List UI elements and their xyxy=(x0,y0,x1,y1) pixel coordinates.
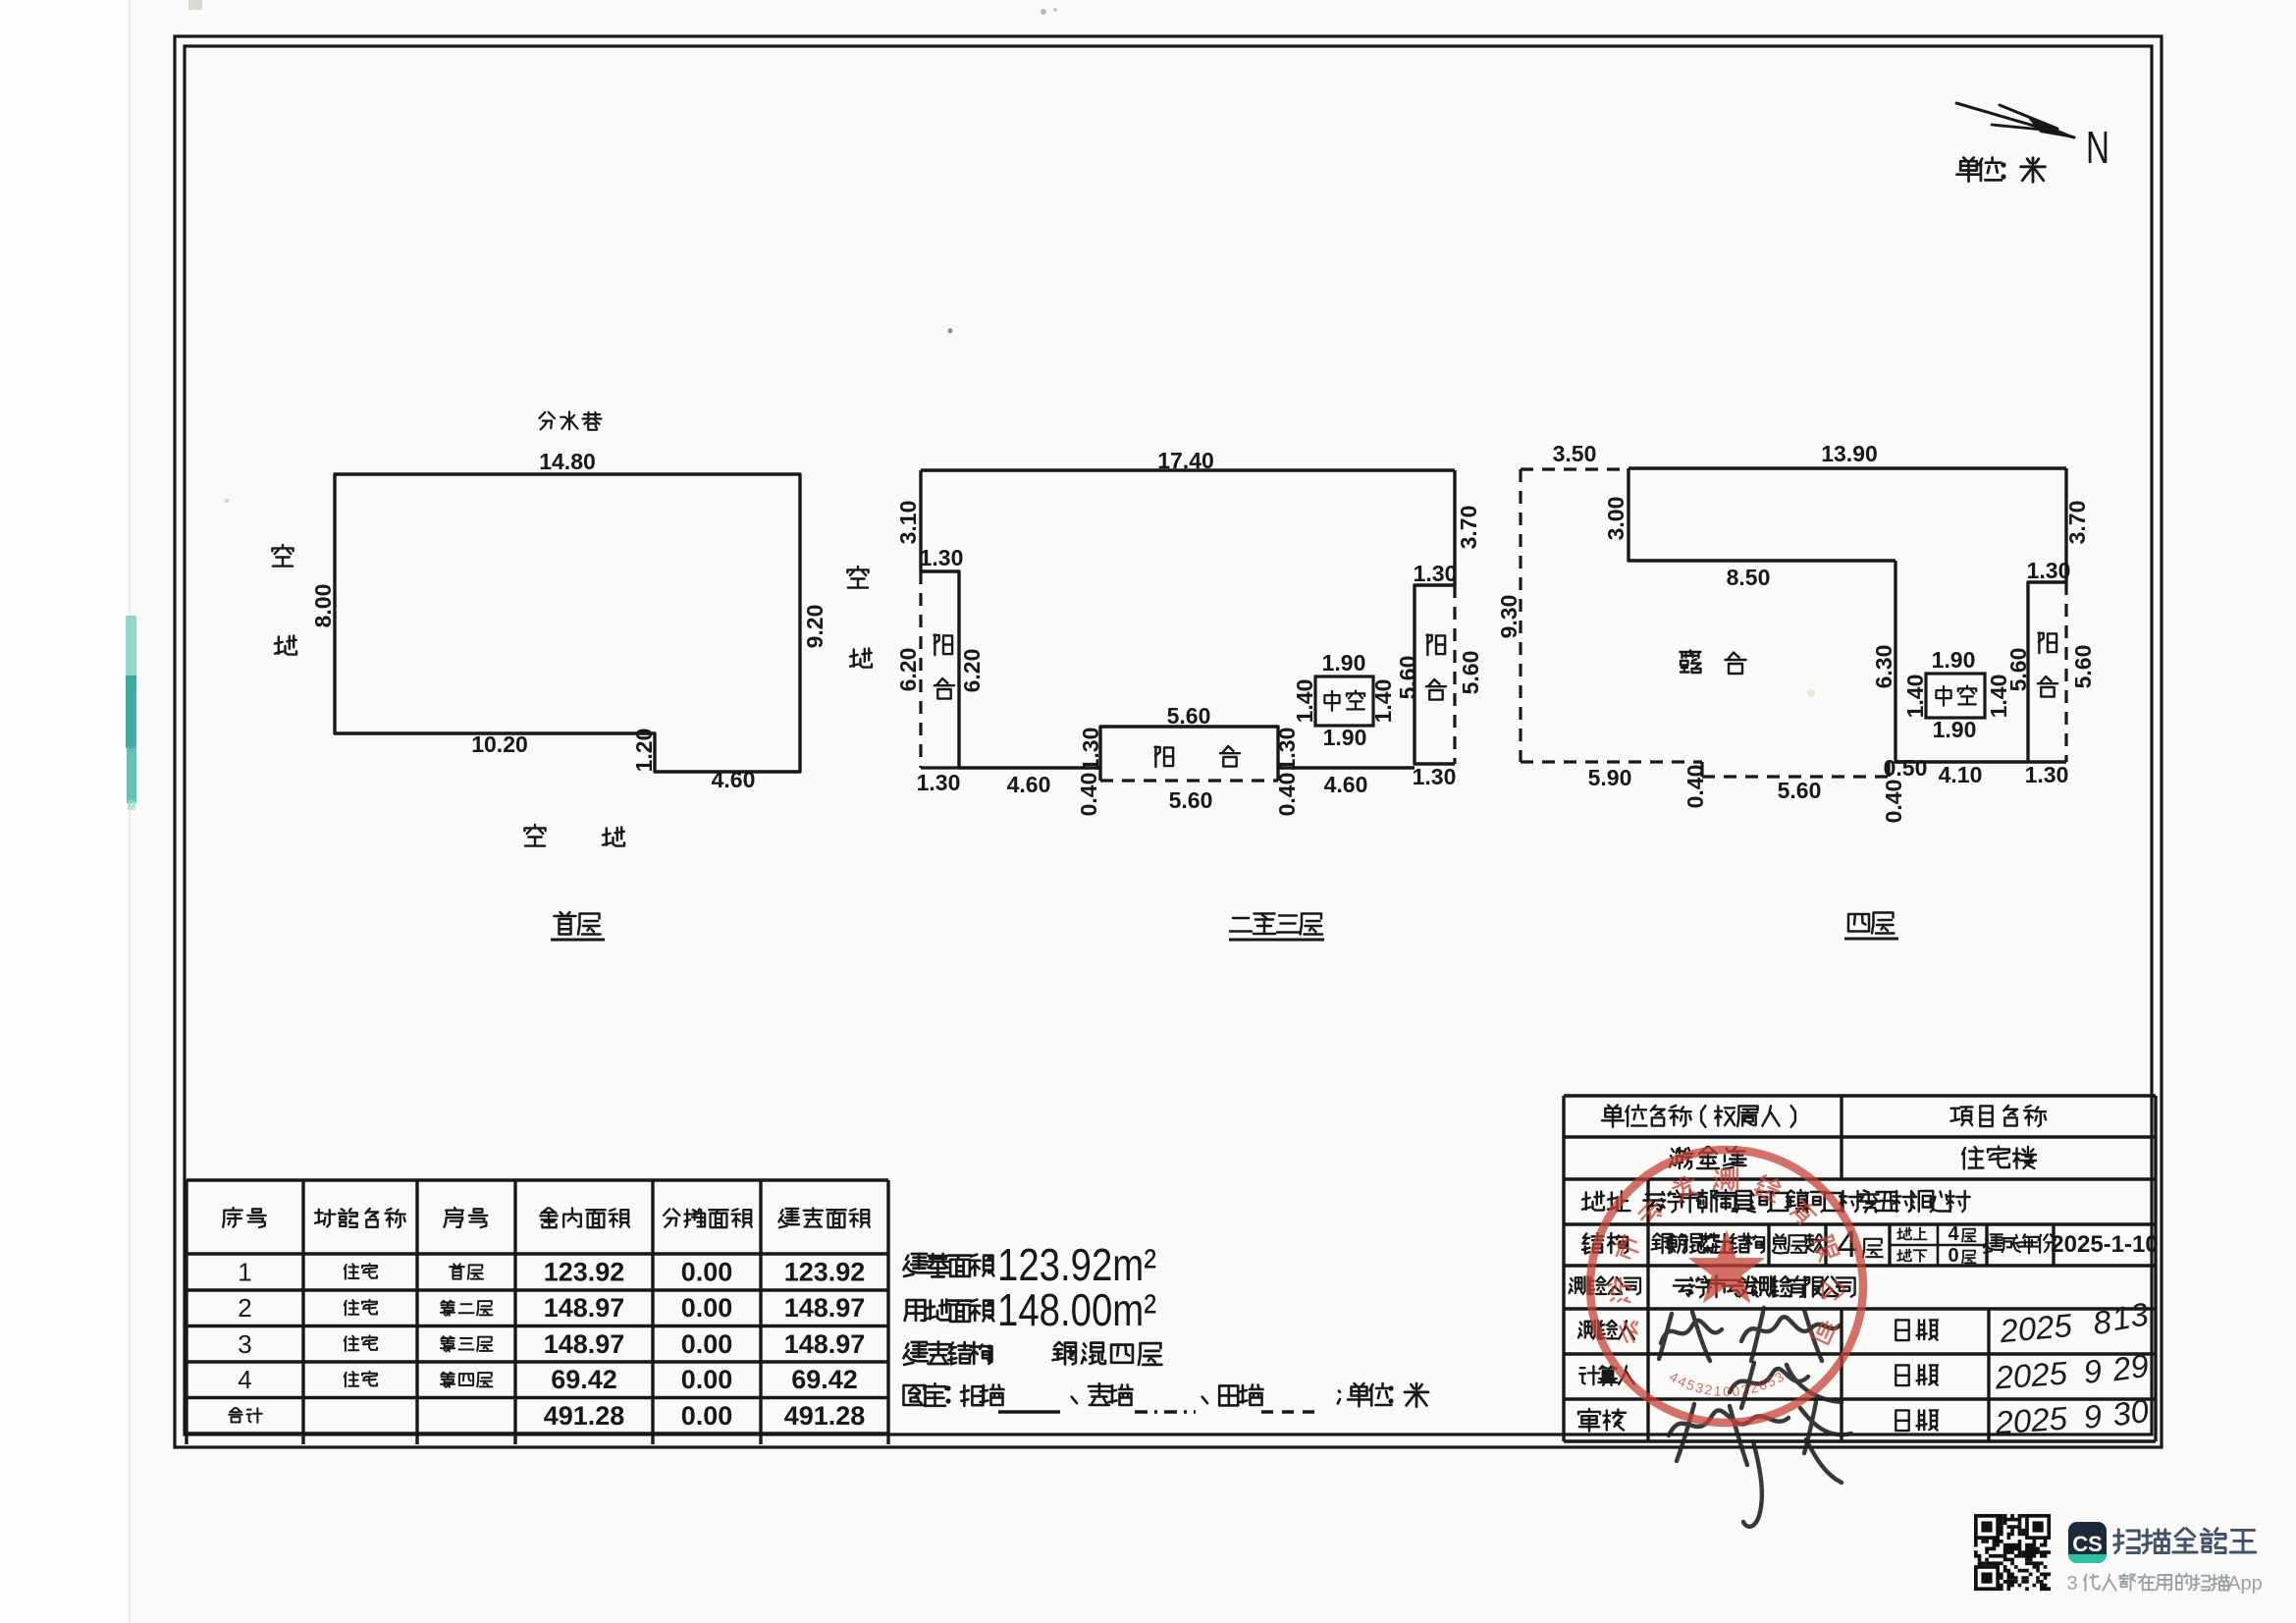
svg-text:4: 4 xyxy=(1948,1223,1959,1245)
svg-text:30: 30 xyxy=(2110,1392,2152,1434)
svg-text:1.90: 1.90 xyxy=(1323,725,1367,750)
svg-text:1.30: 1.30 xyxy=(2027,558,2071,583)
svg-text:N: N xyxy=(2086,122,2109,173)
svg-text:1.90: 1.90 xyxy=(1932,647,1976,673)
svg-text:148.00m²: 148.00m² xyxy=(997,1284,1156,1335)
svg-text:3.10: 3.10 xyxy=(895,501,921,545)
svg-text:5.60: 5.60 xyxy=(2005,648,2031,692)
svg-text:123.92: 123.92 xyxy=(544,1258,625,1287)
svg-text:5.90: 5.90 xyxy=(1588,765,1632,790)
svg-text:1.30: 1.30 xyxy=(2025,762,2069,787)
svg-text:4.60: 4.60 xyxy=(712,767,756,792)
svg-text:123.92: 123.92 xyxy=(784,1258,866,1287)
svg-text:4.60: 4.60 xyxy=(1007,772,1051,797)
svg-text:0: 0 xyxy=(1723,1383,1731,1399)
svg-text:29: 29 xyxy=(2109,1347,2152,1388)
svg-text:1: 1 xyxy=(1713,1382,1722,1399)
svg-text:491.28: 491.28 xyxy=(784,1401,866,1431)
svg-text:3.70: 3.70 xyxy=(1456,506,1481,550)
svg-text:14.80: 14.80 xyxy=(539,449,596,474)
svg-text:0: 0 xyxy=(1732,1382,1740,1399)
svg-text:3.50: 3.50 xyxy=(1553,441,1597,466)
svg-text:9: 9 xyxy=(2082,1352,2104,1390)
svg-text:2025: 2025 xyxy=(1993,1399,2068,1440)
svg-text:10.20: 10.20 xyxy=(471,731,528,757)
svg-text:2: 2 xyxy=(238,1293,251,1323)
svg-text:5.60: 5.60 xyxy=(1167,703,1211,729)
svg-text:8.00: 8.00 xyxy=(310,584,336,628)
svg-text:0.40: 0.40 xyxy=(1881,780,1906,824)
svg-text:1.40: 1.40 xyxy=(1902,675,1928,719)
svg-text:4.60: 4.60 xyxy=(1324,772,1368,797)
svg-text:0.00: 0.00 xyxy=(681,1258,733,1287)
svg-text:3.00: 3.00 xyxy=(1603,497,1629,541)
svg-text:0.40: 0.40 xyxy=(1076,773,1101,817)
svg-text:69.42: 69.42 xyxy=(791,1365,858,1394)
svg-text:148.97: 148.97 xyxy=(544,1293,625,1323)
svg-text:0.00: 0.00 xyxy=(681,1293,733,1323)
svg-text:9.20: 9.20 xyxy=(802,605,828,649)
svg-text:5.60: 5.60 xyxy=(1778,778,1822,803)
svg-text:1.30: 1.30 xyxy=(1413,764,1457,789)
svg-text:123.92m²: 123.92m² xyxy=(997,1239,1156,1290)
svg-text:2025: 2025 xyxy=(1998,1307,2074,1349)
svg-text:0.00: 0.00 xyxy=(681,1365,733,1394)
svg-text:1.30: 1.30 xyxy=(1274,728,1300,772)
svg-text:1.40: 1.40 xyxy=(1370,679,1396,724)
svg-text:4.10: 4.10 xyxy=(1939,762,1983,787)
svg-text:491.28: 491.28 xyxy=(544,1401,625,1431)
svg-text:0: 0 xyxy=(1948,1245,1958,1267)
svg-text:69.42: 69.42 xyxy=(551,1365,617,1394)
svg-text:5.60: 5.60 xyxy=(2070,645,2096,689)
svg-text:3: 3 xyxy=(238,1329,251,1359)
svg-text:6.20: 6.20 xyxy=(895,648,921,692)
svg-text:1.30: 1.30 xyxy=(1414,561,1458,586)
svg-text:148.97: 148.97 xyxy=(544,1329,625,1359)
svg-text:17.40: 17.40 xyxy=(1157,448,1214,473)
svg-text:0.00: 0.00 xyxy=(681,1401,733,1431)
svg-text:2025-1-10: 2025-1-10 xyxy=(2051,1231,2158,1258)
svg-text:1: 1 xyxy=(238,1258,251,1287)
svg-text:13: 13 xyxy=(2109,1295,2152,1337)
svg-text:0.40: 0.40 xyxy=(1682,765,1708,809)
svg-text:6.30: 6.30 xyxy=(1871,645,1896,689)
svg-text:0.50: 0.50 xyxy=(1884,755,1928,781)
svg-text:5.60: 5.60 xyxy=(1458,651,1483,695)
svg-text:0.00: 0.00 xyxy=(681,1329,733,1359)
svg-text:1.20: 1.20 xyxy=(631,729,657,773)
svg-text:5.60: 5.60 xyxy=(1395,656,1420,700)
svg-text:1.30: 1.30 xyxy=(917,770,961,795)
svg-text:148.97: 148.97 xyxy=(784,1329,866,1359)
svg-text:5.60: 5.60 xyxy=(1169,787,1213,813)
svg-text:4: 4 xyxy=(238,1365,251,1394)
svg-text:148.97: 148.97 xyxy=(784,1293,866,1323)
svg-text:0.40: 0.40 xyxy=(1274,773,1300,817)
svg-text:9: 9 xyxy=(2082,1397,2104,1435)
svg-text:9.30: 9.30 xyxy=(1496,595,1522,639)
svg-text:App: App xyxy=(2227,1573,2263,1595)
svg-text:1.30: 1.30 xyxy=(1078,728,1103,772)
svg-text:8.50: 8.50 xyxy=(1727,565,1771,590)
svg-text:3: 3 xyxy=(2066,1573,2077,1595)
svg-text:1.90: 1.90 xyxy=(1933,717,1977,742)
svg-text:CS: CS xyxy=(2072,1532,2103,1556)
svg-text:1.90: 1.90 xyxy=(1322,650,1366,676)
svg-text:13.90: 13.90 xyxy=(1821,441,1878,466)
svg-text:1.40: 1.40 xyxy=(1292,679,1317,724)
svg-text:6.20: 6.20 xyxy=(959,649,985,693)
svg-text:3.70: 3.70 xyxy=(2064,501,2090,545)
svg-text:1.30: 1.30 xyxy=(920,545,964,570)
svg-text:2025: 2025 xyxy=(1993,1354,2068,1395)
